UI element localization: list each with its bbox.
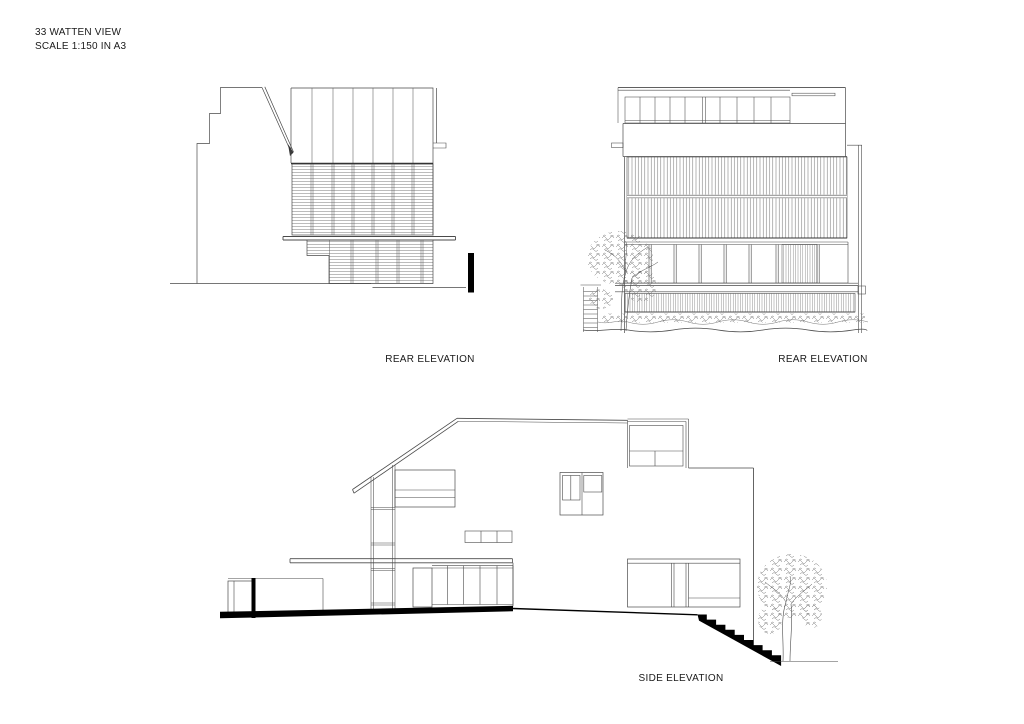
title-block: 33 WATTEN VIEW SCALE 1:150 IN A3 [35, 26, 126, 54]
lower-louvre-screen [307, 240, 433, 284]
floor-slab [283, 237, 456, 241]
eaves-box [395, 470, 455, 507]
drawing-sheet: 33 WATTEN VIEW SCALE 1:150 IN A3 [0, 0, 1024, 724]
door [413, 568, 432, 607]
roof-line [353, 418, 628, 493]
boundary-post [468, 253, 474, 293]
balustrade-screen [625, 294, 855, 313]
caption-rear-elevation-left: REAR ELEVATION [320, 354, 540, 365]
rear-elevation-right-drawing [575, 78, 875, 340]
upper-louvre-screen [291, 164, 433, 236]
caption-side-elevation: SIDE ELEVATION [571, 673, 791, 684]
roof-edge [262, 87, 294, 156]
vertical-louvre-screen [627, 157, 847, 238]
rear-elevation-left-drawing [160, 70, 490, 305]
roof-bulkhead [628, 419, 689, 468]
ground-line [583, 328, 867, 332]
side-elevation-drawing [215, 405, 845, 695]
roof-line [618, 88, 846, 157]
lower-glazing [432, 566, 513, 605]
sheet-scale: SCALE 1:150 IN A3 [35, 40, 126, 54]
planting-row [598, 314, 868, 325]
canopy-slab [290, 559, 513, 563]
fascia-band [612, 124, 848, 157]
caption-rear-elevation-right: REAR ELEVATION [713, 354, 933, 365]
ground-line [170, 284, 466, 288]
right-body-outline [689, 468, 754, 649]
strip-window [465, 531, 512, 543]
mid-window-cluster [560, 473, 603, 516]
sheet-title: 33 WATTEN VIEW [35, 26, 126, 40]
tree [757, 554, 838, 662]
glazing-band [625, 242, 848, 283]
ground-section [220, 606, 698, 619]
stepped-wall-profile [197, 88, 262, 284]
trellis-column [371, 465, 395, 609]
large-window [628, 559, 741, 607]
clerestory-windows [625, 97, 790, 123]
